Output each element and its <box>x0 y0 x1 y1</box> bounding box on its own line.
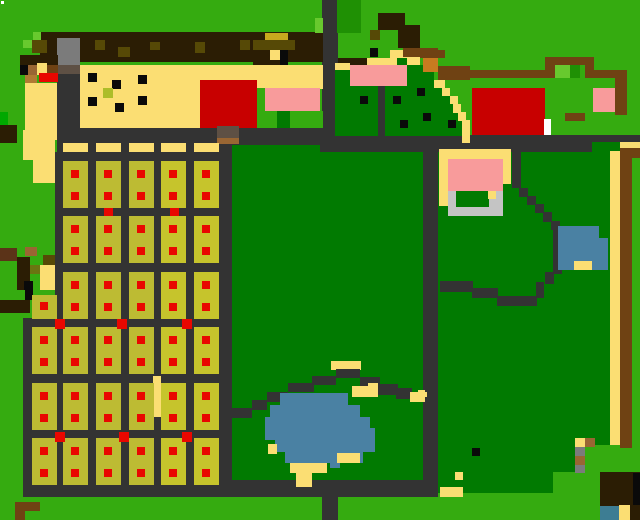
crop-dot <box>71 392 79 400</box>
map-rect-RD <box>497 296 537 306</box>
farm-plot <box>161 438 186 485</box>
map-rect-BK <box>448 120 456 128</box>
map-rect-BR <box>545 57 590 65</box>
map-rect-GY <box>575 447 585 456</box>
map-rect-SA <box>442 88 450 96</box>
crop-dot <box>169 414 177 422</box>
crop-dot <box>71 303 79 311</box>
farm-plot <box>161 327 186 374</box>
crop-dot <box>202 414 210 422</box>
crop-dot <box>71 247 79 255</box>
crop-dot <box>71 225 79 233</box>
crop-dot <box>71 336 79 344</box>
farm-plot <box>96 161 121 208</box>
farm-plot <box>161 161 186 208</box>
crop-dot <box>202 170 210 178</box>
crop-dot <box>202 336 210 344</box>
map-rect-RD <box>536 282 544 298</box>
farm-map-canvas[interactable] <box>0 0 640 520</box>
map-rect-SA <box>33 160 55 183</box>
map-rect-RD <box>423 152 438 497</box>
map-rect-BL <box>265 417 370 428</box>
map-rect-OLD <box>118 47 130 57</box>
crop-dot <box>104 303 112 311</box>
map-rect-BRD <box>0 300 30 313</box>
map-rect-BK <box>138 96 147 105</box>
map-rect-BR <box>438 66 470 80</box>
crop-dot <box>137 281 145 289</box>
crop-dot <box>169 469 177 477</box>
crop-dot <box>169 392 177 400</box>
farm-plot <box>96 383 121 430</box>
crop-dot <box>137 469 145 477</box>
farm-plot <box>194 216 219 263</box>
map-rect-BK <box>423 113 431 121</box>
map-rect-BRD <box>0 125 17 143</box>
map-rect-TAN <box>25 75 37 83</box>
map-rect-BR <box>420 50 445 58</box>
crop-dot <box>137 414 145 422</box>
crop-dot <box>104 447 112 455</box>
farm-plot <box>96 272 121 319</box>
farm-plot <box>63 272 88 319</box>
map-rect-BRM <box>25 247 37 256</box>
map-rect-RD <box>440 281 473 292</box>
plot-top-bar <box>129 143 154 152</box>
map-rect-GL <box>315 18 323 33</box>
farm-plot <box>129 216 154 263</box>
map-rect-BK <box>400 120 408 128</box>
map-rect-BL2 <box>600 506 619 520</box>
crop-dot <box>169 303 177 311</box>
map-rect-ADB <box>103 88 113 98</box>
map-rect-GD <box>277 111 290 128</box>
map-rect-BK <box>417 88 425 96</box>
crop-dot <box>40 414 48 422</box>
farm-plot <box>194 383 219 430</box>
map-rect-BR <box>15 502 40 511</box>
map-rect-SA <box>296 473 312 487</box>
map-rect-BK <box>112 80 121 89</box>
crop-dot <box>71 170 79 178</box>
crop-dot <box>169 192 177 200</box>
map-rect-RD <box>288 383 314 392</box>
map-rect-BRM <box>585 438 595 447</box>
crop-dot <box>137 336 145 344</box>
map-rect-RD <box>336 369 360 378</box>
crop-dot <box>104 192 112 200</box>
crop-dot <box>202 358 210 366</box>
map-rect-BK <box>472 448 480 456</box>
crop-dot <box>104 392 112 400</box>
map-rect-SA <box>368 383 378 397</box>
farm-plot <box>129 161 154 208</box>
crop-dot <box>40 302 48 310</box>
map-rect-SA <box>434 80 445 88</box>
map-rect-BL <box>275 440 375 452</box>
map-rect-BRM <box>575 456 585 465</box>
map-rect-RD <box>472 288 498 298</box>
crop-dot <box>40 392 48 400</box>
map-rect-WH <box>544 119 551 135</box>
map-rect-RD <box>230 408 252 418</box>
map-rect-SA <box>290 463 327 473</box>
crop-dot <box>202 225 210 233</box>
map-rect-G <box>585 445 610 473</box>
map-rect-SA <box>439 184 448 206</box>
map-rect-BR <box>565 113 585 121</box>
road-dot <box>182 432 192 442</box>
map-rect-OLD <box>195 42 205 53</box>
map-rect-SA <box>337 453 360 463</box>
map-rect-BRR <box>0 248 17 261</box>
farm-plot <box>194 272 219 319</box>
map-rect-OLD <box>32 40 47 53</box>
map-rect-G <box>290 111 323 128</box>
crop-dot <box>104 358 112 366</box>
map-rect-OLD <box>240 40 250 50</box>
map-rect-OLD <box>95 40 105 50</box>
crop-dot <box>137 392 145 400</box>
farm-plot <box>32 438 57 485</box>
map-rect-SA <box>440 487 463 497</box>
map-rect-ORN <box>423 58 438 72</box>
map-rect-SA <box>450 96 458 104</box>
crop-dot <box>71 447 79 455</box>
map-rect-SA <box>270 50 280 60</box>
map-rect-SA <box>25 83 57 140</box>
crop-dot <box>169 447 177 455</box>
map-rect-GYB <box>217 126 239 138</box>
road-dot <box>55 319 65 329</box>
map-rect-RB <box>200 80 257 128</box>
farm-plot <box>63 438 88 485</box>
crop-dot <box>202 392 210 400</box>
map-rect-BK <box>393 96 401 104</box>
farm-plot <box>129 383 154 430</box>
map-rect-BL <box>330 463 340 468</box>
road-dot <box>182 319 192 329</box>
map-rect-RD <box>322 497 338 520</box>
map-rect-OLD <box>370 30 380 40</box>
farm-plot <box>96 216 121 263</box>
farm-plot <box>161 383 186 430</box>
crop-dot <box>104 469 112 477</box>
crop-dot <box>137 170 145 178</box>
farm-plot <box>129 438 154 485</box>
crop-dot <box>104 247 112 255</box>
map-rect-SA <box>455 472 463 480</box>
map-rect-GYB <box>57 65 80 74</box>
map-rect-BK <box>138 75 147 84</box>
map-rect-GD <box>456 191 489 207</box>
map-rect-SA <box>619 505 630 520</box>
map-rect-GY <box>57 38 80 65</box>
map-rect-G <box>257 88 265 126</box>
farm-plot <box>194 327 219 374</box>
map-rect-BK <box>370 48 378 57</box>
crop-dot <box>71 358 79 366</box>
map-rect-BR <box>585 57 594 78</box>
map-rect-BR <box>15 511 25 520</box>
crop-dot <box>104 225 112 233</box>
crop-dot <box>169 225 177 233</box>
crop-dot <box>169 170 177 178</box>
crop-dot <box>104 170 112 178</box>
crop-dot <box>202 247 210 255</box>
plot-connector-dot <box>170 208 179 216</box>
map-rect-SA <box>367 58 397 65</box>
crop-dot <box>71 414 79 422</box>
crop-dot <box>104 414 112 422</box>
farm-plot <box>96 438 121 485</box>
map-rect-SA <box>488 191 496 199</box>
map-rect-RD <box>219 152 232 497</box>
map-rect-BK <box>360 96 368 104</box>
map-rect-BRD <box>398 25 420 48</box>
map-rect-SA <box>80 85 200 128</box>
map-rect-BK <box>88 97 97 106</box>
map-rect-SA <box>574 261 592 270</box>
map-rect-RD <box>378 384 398 395</box>
map-rect-BR <box>620 151 632 448</box>
map-rect-RD <box>219 480 438 497</box>
road-dot <box>117 319 127 329</box>
plot-top-bar <box>96 143 121 152</box>
map-rect-RD <box>545 272 554 284</box>
crop-dot <box>71 469 79 477</box>
map-rect-OLD <box>150 42 160 50</box>
map-rect-BR <box>545 65 555 78</box>
map-rect-RD <box>312 376 336 385</box>
crop-dot <box>169 336 177 344</box>
map-rect-WH <box>1 1 4 4</box>
map-rect-BL <box>280 393 348 405</box>
plot-connector-dot <box>104 208 113 216</box>
map-rect-PK <box>265 88 320 111</box>
plot-top-bar <box>194 143 219 152</box>
map-rect-GD <box>385 86 434 136</box>
crop-dot <box>169 247 177 255</box>
map-rect-GL <box>555 65 570 78</box>
crop-dot <box>202 303 210 311</box>
map-rect-SA <box>40 265 55 290</box>
farm-plot <box>32 327 57 374</box>
map-rect-G <box>265 111 277 128</box>
map-rect-RE <box>39 73 58 82</box>
map-rect-SA <box>268 444 277 454</box>
map-rect-RB <box>472 88 545 135</box>
crop-dot <box>71 281 79 289</box>
road-dot <box>119 432 129 442</box>
farm-plot <box>63 161 88 208</box>
farm-plot <box>63 216 88 263</box>
map-rect-GY <box>575 465 585 473</box>
farm-plot <box>194 161 219 208</box>
crop-dot <box>137 358 145 366</box>
crop-dot <box>40 358 48 366</box>
map-rect-BRM <box>217 138 239 144</box>
crop-dot <box>137 447 145 455</box>
crop-dot <box>71 192 79 200</box>
crop-dot <box>104 281 112 289</box>
crop-dot <box>104 336 112 344</box>
crop-dot <box>40 447 48 455</box>
map-rect-SA <box>462 120 470 143</box>
crop-dot <box>137 225 145 233</box>
farm-plot <box>161 272 186 319</box>
plot-top-bar <box>161 143 186 152</box>
crop-dot <box>169 358 177 366</box>
crop-dot <box>202 281 210 289</box>
crop-dot <box>169 281 177 289</box>
farm-plot <box>63 383 88 430</box>
map-rect-PK <box>350 65 407 86</box>
map-rect-BK <box>115 103 124 112</box>
map-rect-GM <box>337 0 361 33</box>
plot-top-bar <box>63 143 88 152</box>
map-rect-SA <box>610 151 620 445</box>
crop-dot <box>137 247 145 255</box>
map-rect-PK <box>593 88 615 112</box>
farm-plot <box>161 216 186 263</box>
map-rect-GD <box>599 226 608 238</box>
map-rect-BK <box>633 473 640 505</box>
map-rect-G2 <box>0 112 8 125</box>
map-rect-OLD <box>43 255 55 265</box>
crop-dot <box>40 469 48 477</box>
farm-plot <box>129 272 154 319</box>
map-rect-RD <box>252 400 267 410</box>
farm-plot <box>63 327 88 374</box>
map-rect-GM <box>570 65 580 78</box>
crop-dot <box>137 192 145 200</box>
map-rect-RD <box>57 73 80 128</box>
map-rect-RD <box>512 150 521 188</box>
crop-dot <box>202 469 210 477</box>
crop-dot <box>202 447 210 455</box>
farm-plot <box>96 327 121 374</box>
map-rect-BK <box>24 281 33 290</box>
map-rect-BK <box>88 73 97 82</box>
farm-plot <box>32 383 57 430</box>
farm-plot <box>194 438 219 485</box>
crop-dot <box>137 303 145 311</box>
map-rect-PK <box>448 159 503 191</box>
map-rect-RD <box>378 86 385 136</box>
map-rect-OLD <box>253 40 295 50</box>
map-rect-BL <box>265 428 375 440</box>
map-rect-BR <box>615 70 627 115</box>
farm-plot <box>129 327 154 374</box>
map-rect-RD <box>425 397 438 408</box>
map-rect-BR <box>470 70 545 78</box>
map-rect-SA <box>153 376 161 417</box>
map-rect-SA <box>575 438 585 447</box>
crop-dot <box>202 192 210 200</box>
map-rect-BL <box>270 405 360 417</box>
map-rect-BK <box>20 65 28 75</box>
crop-dot <box>40 336 48 344</box>
road-dot <box>55 432 65 442</box>
